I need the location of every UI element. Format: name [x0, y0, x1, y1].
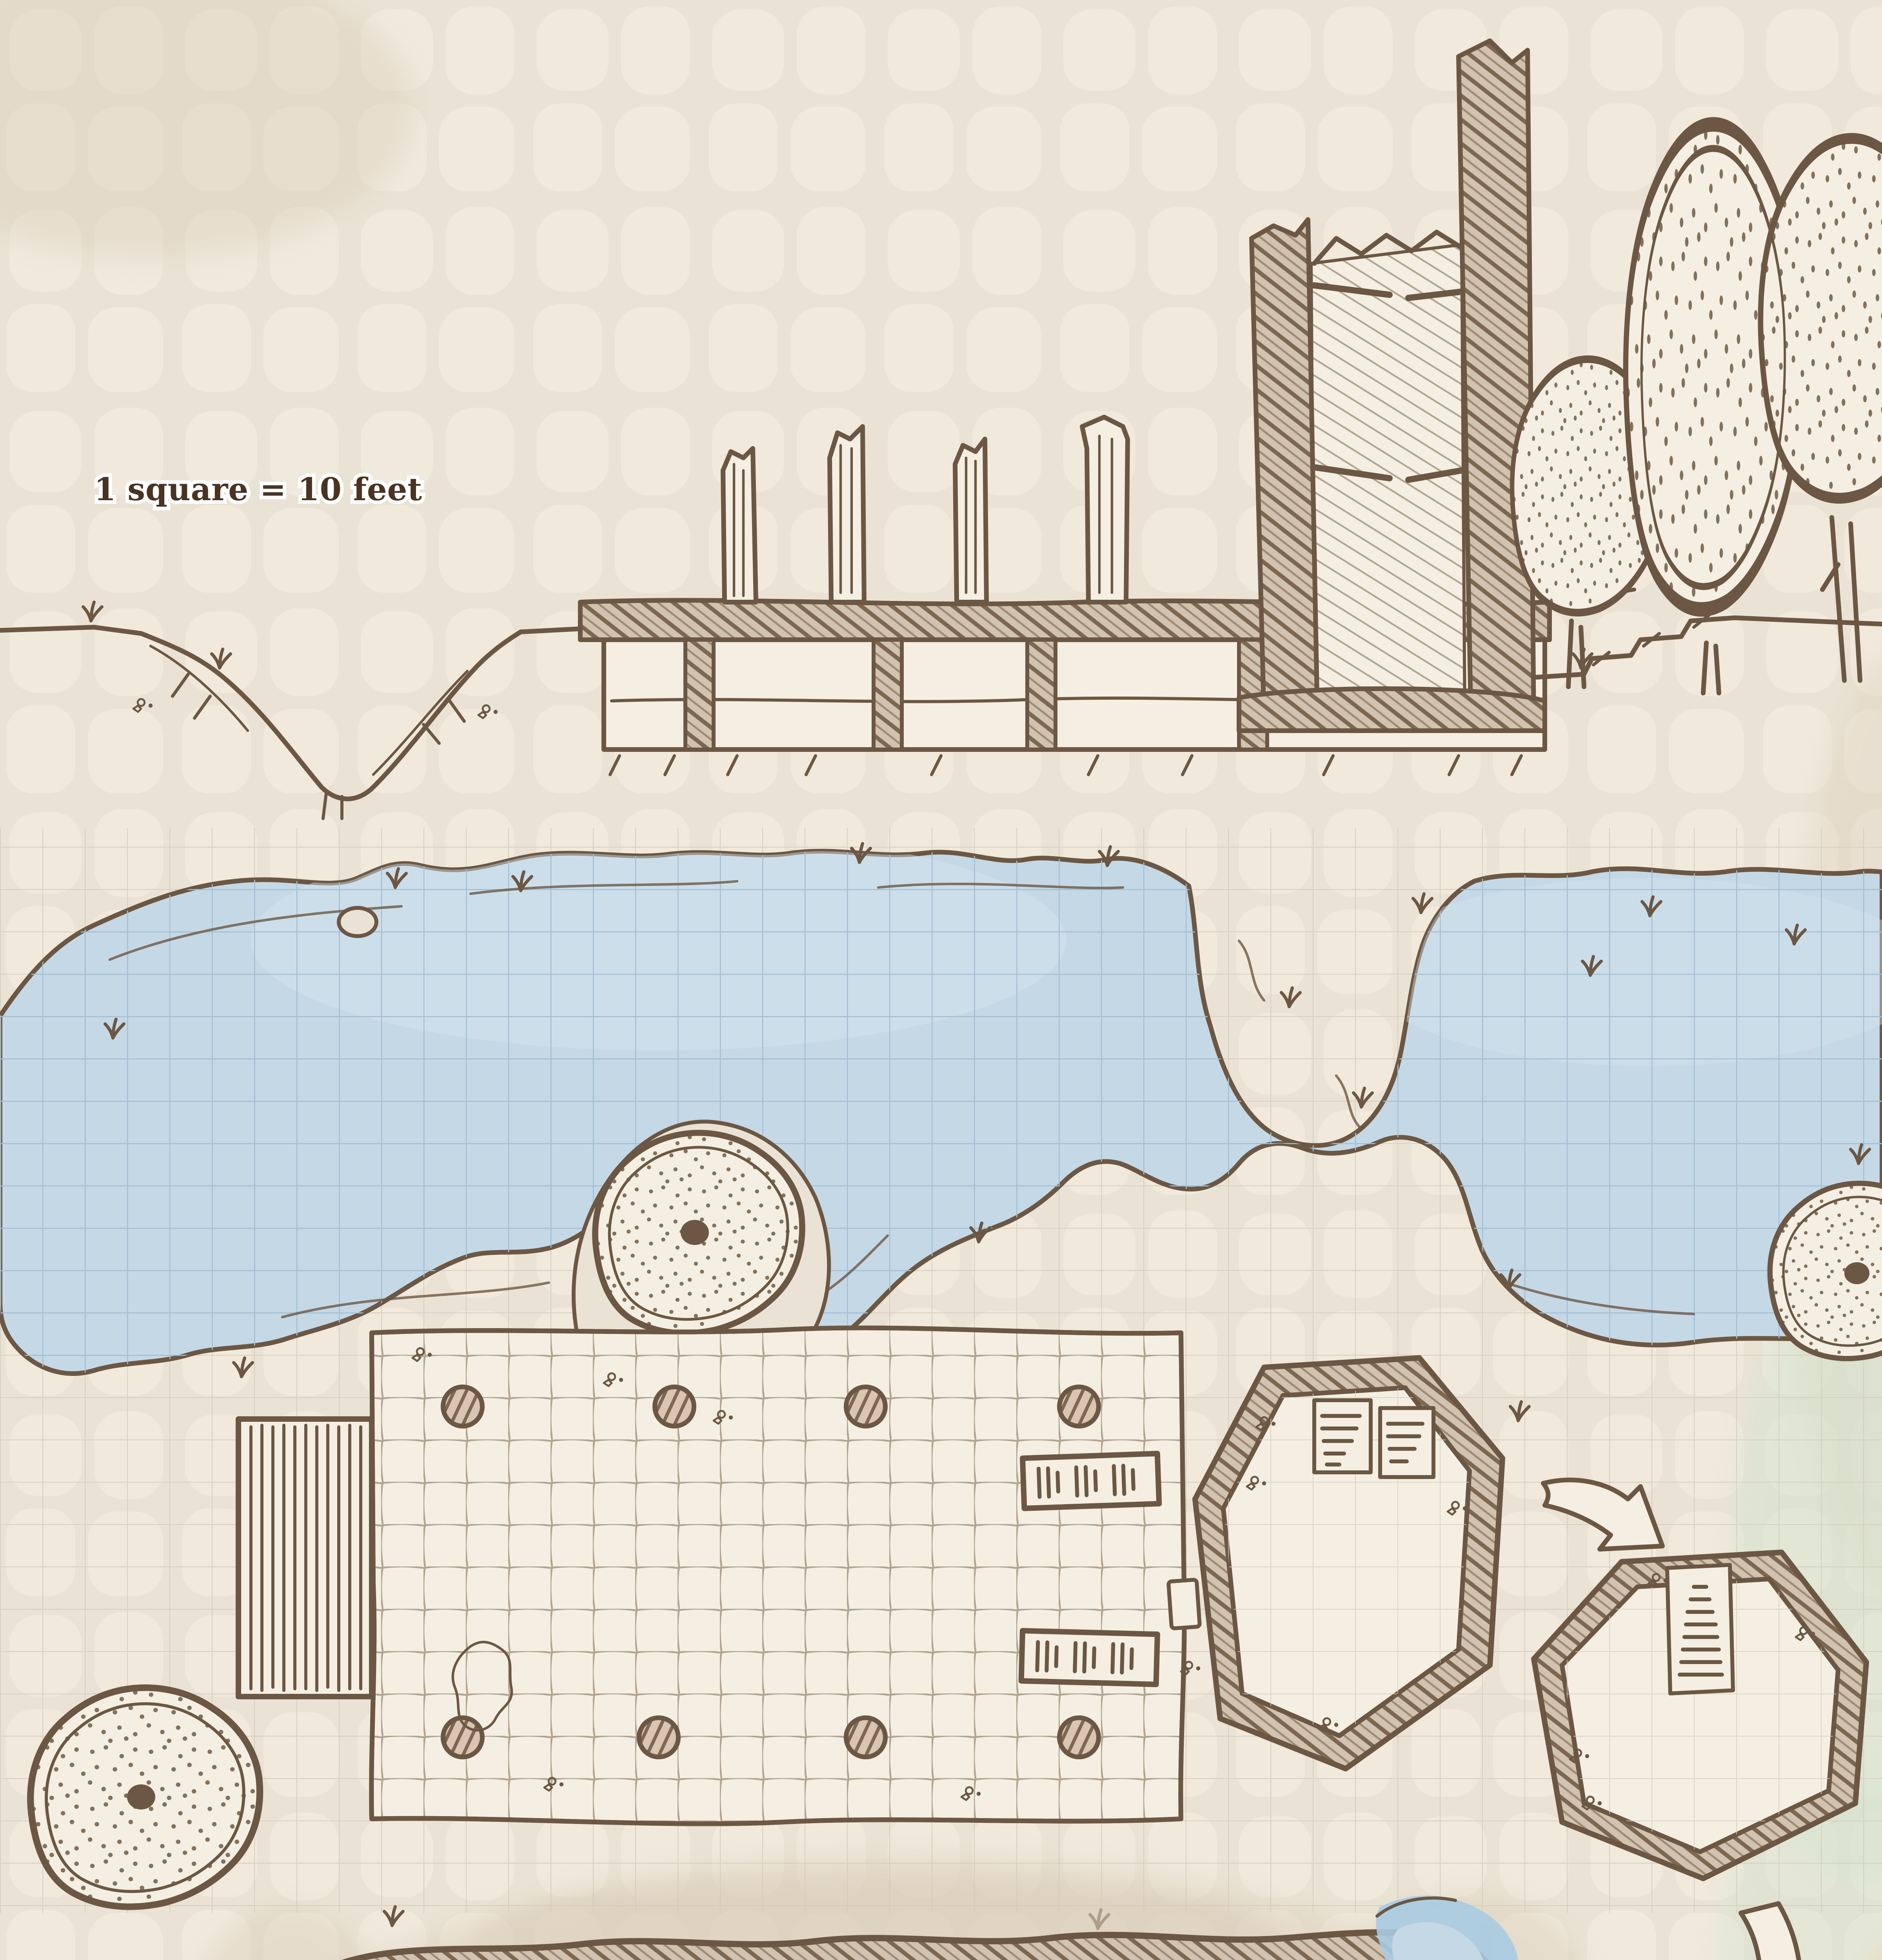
tree-canopy-mid — [595, 1133, 802, 1333]
fantasy-map-page: 1 square = 10 feet — [0, 0, 1882, 1960]
tree-trunk-dot — [1844, 1262, 1869, 1284]
tree-trunk-dot — [127, 1784, 155, 1809]
doorway — [1168, 1580, 1200, 1629]
descending-stairs — [1667, 1565, 1733, 1693]
tree-canopy-southwest — [31, 1688, 260, 1907]
map-illustration: 1 square = 10 feet — [0, 0, 1882, 1960]
tree-trunk-dot — [681, 1220, 709, 1245]
lake-island — [339, 908, 376, 936]
grand-staircase — [238, 1419, 372, 1697]
scale-label: 1 square = 10 feet — [94, 471, 422, 508]
great-hall-ruin — [238, 1317, 1200, 1835]
